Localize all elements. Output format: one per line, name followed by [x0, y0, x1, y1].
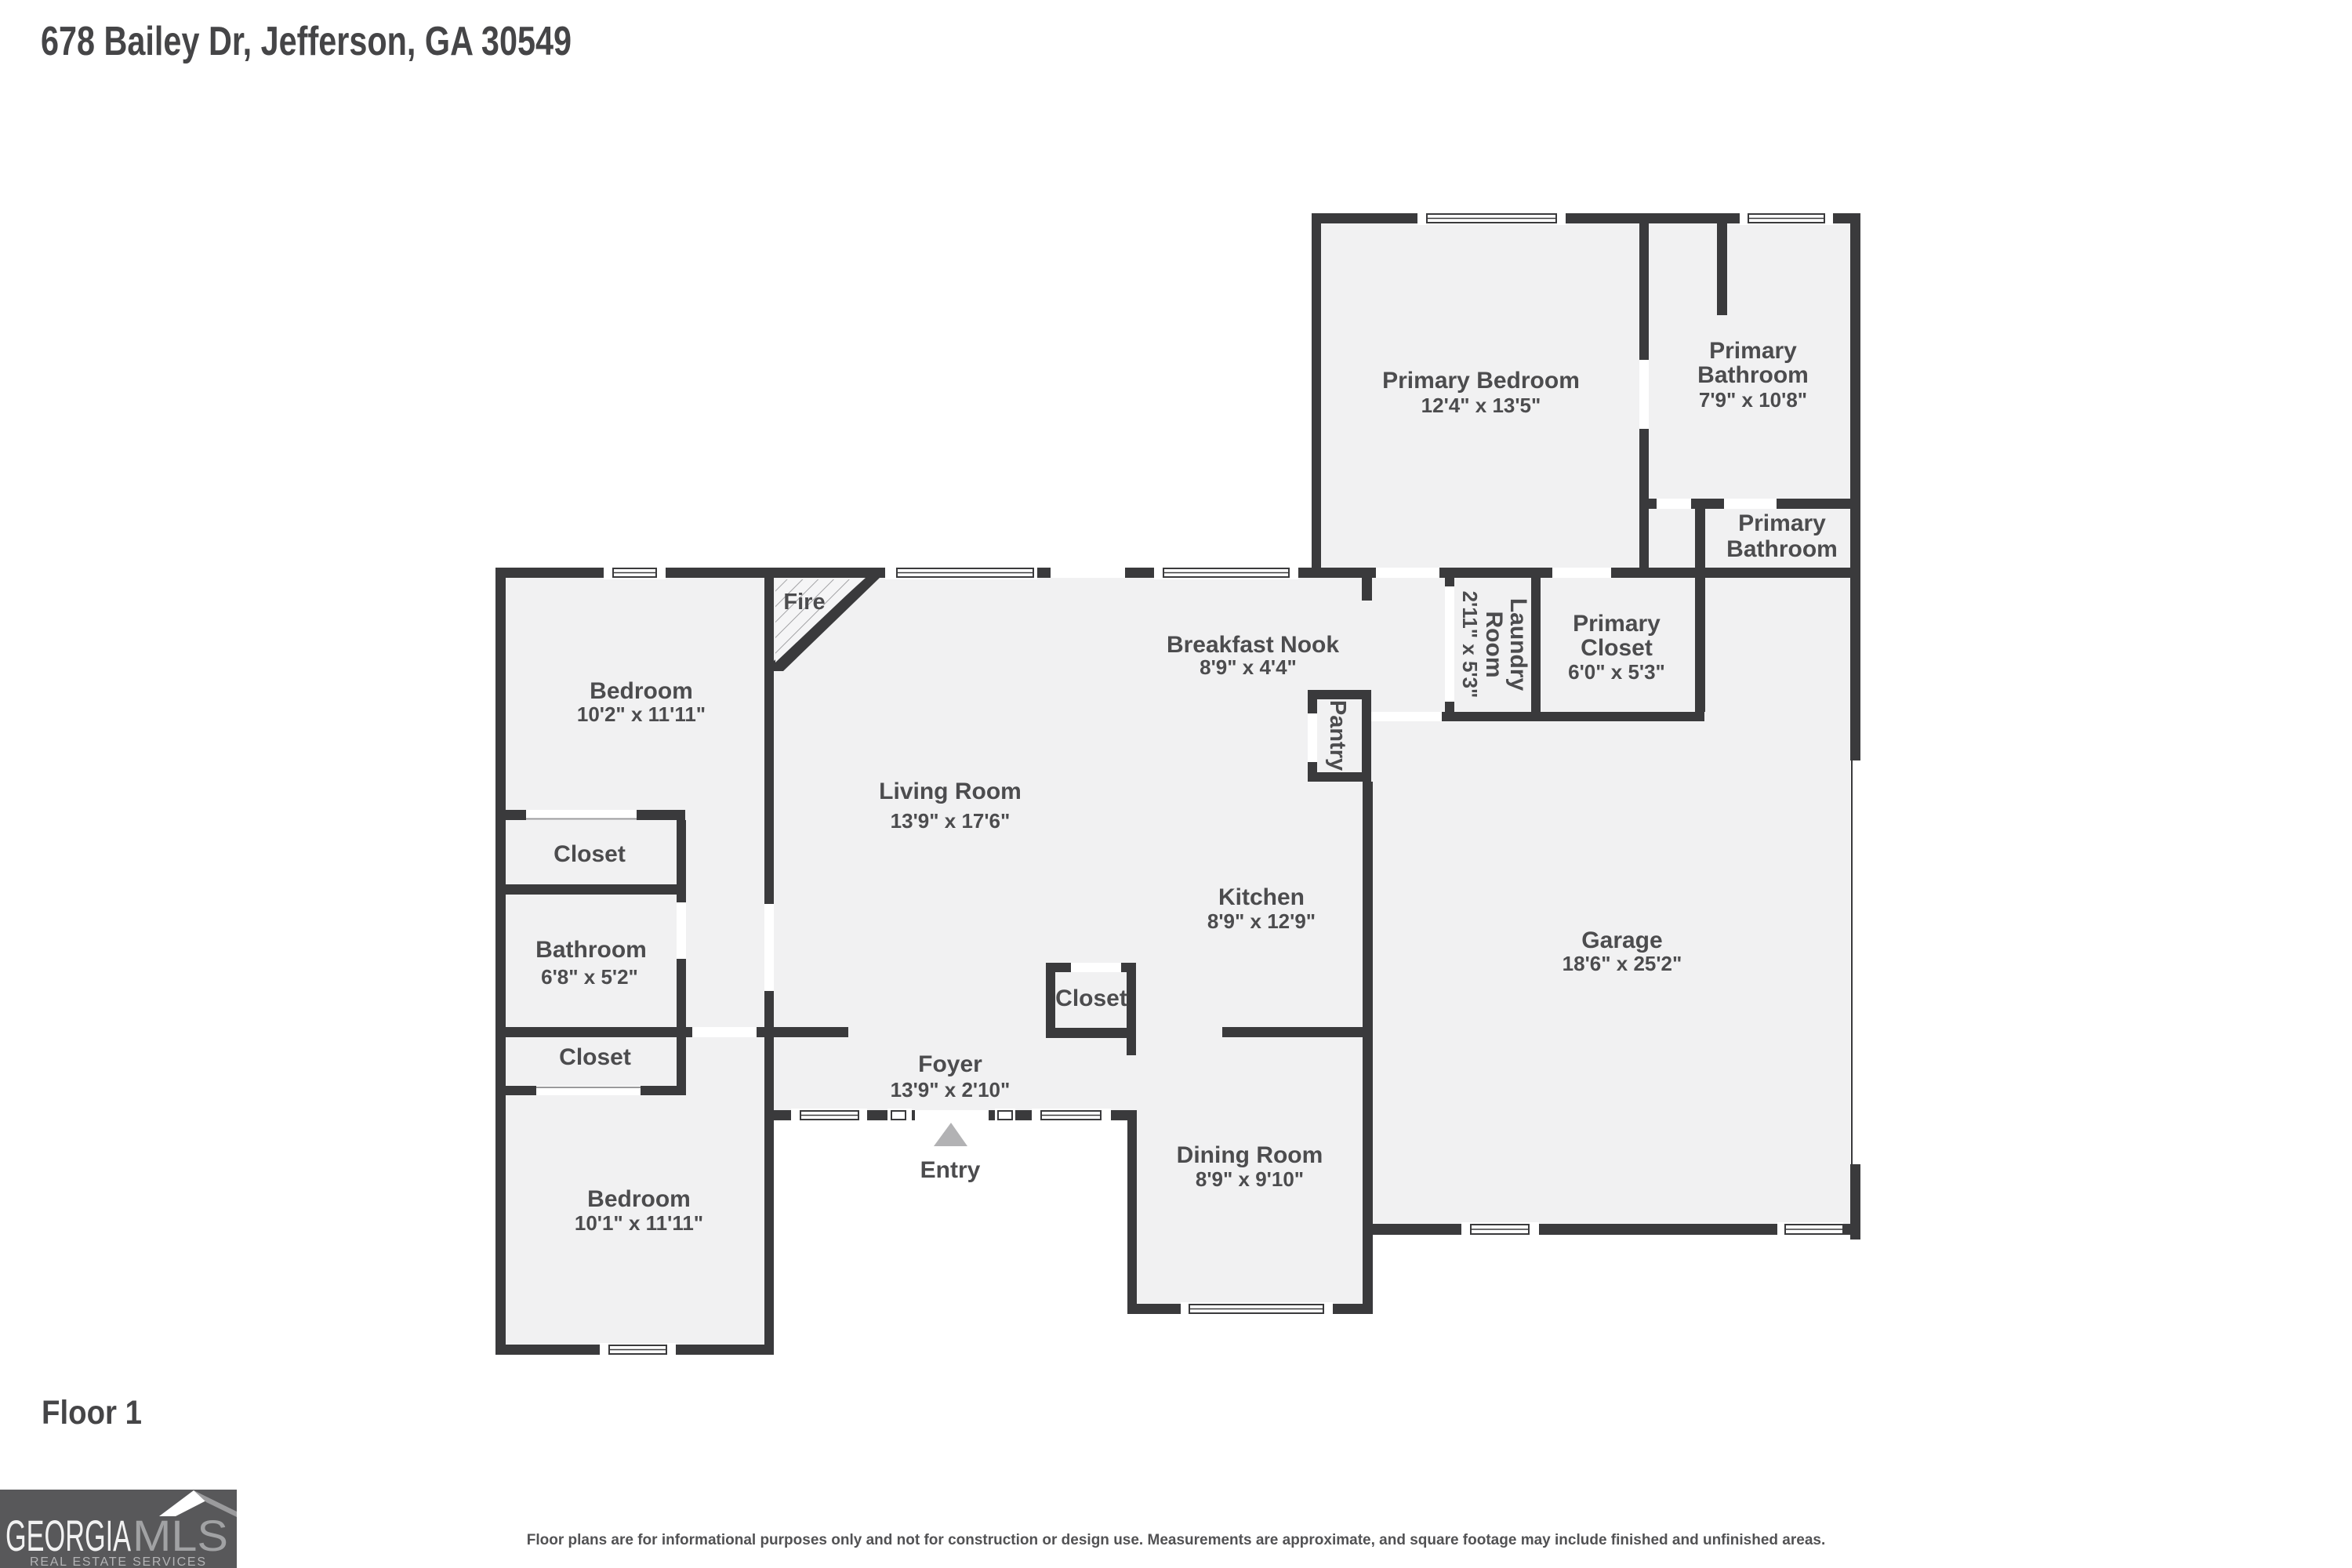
- svg-text:13'9" x 2'10": 13'9" x 2'10": [891, 1078, 1011, 1102]
- svg-text:Fire: Fire: [783, 590, 825, 615]
- svg-text:Foyer: Foyer: [918, 1051, 982, 1077]
- svg-text:18'6" x 25'2": 18'6" x 25'2": [1563, 952, 1682, 975]
- svg-text:6'8" x 5'2": 6'8" x 5'2": [541, 965, 638, 989]
- svg-text:678 Bailey Dr, Jefferson, GA 3: 678 Bailey Dr, Jefferson, GA 30549: [41, 19, 572, 64]
- svg-text:Primary Bedroom: Primary Bedroom: [1382, 368, 1580, 394]
- svg-text:7'9" x 10'8": 7'9" x 10'8": [1699, 388, 1807, 412]
- svg-text:8'9" x 9'10": 8'9" x 9'10": [1196, 1167, 1304, 1191]
- svg-text:Living Room: Living Room: [879, 779, 1022, 804]
- svg-text:10'1" x 11'11": 10'1" x 11'11": [575, 1211, 703, 1235]
- svg-text:Laundry: Laundry: [1505, 598, 1531, 691]
- svg-text:6'0" x 5'3": 6'0" x 5'3": [1568, 660, 1665, 684]
- svg-text:Primary: Primary: [1573, 611, 1661, 637]
- svg-text:Garage: Garage: [1581, 927, 1662, 953]
- svg-text:8'9" x 4'4": 8'9" x 4'4": [1200, 655, 1297, 679]
- svg-text:Bedroom: Bedroom: [587, 1186, 691, 1212]
- svg-text:2'11" x 5'3": 2'11" x 5'3": [1458, 591, 1482, 699]
- svg-text:Closet: Closet: [1055, 985, 1127, 1011]
- svg-text:REAL ESTATE SERVICES: REAL ESTATE SERVICES: [30, 1555, 205, 1568]
- svg-text:Closet: Closet: [559, 1044, 631, 1070]
- svg-text:MLS: MLS: [132, 1511, 228, 1560]
- svg-text:Bathroom: Bathroom: [535, 937, 647, 963]
- svg-text:10'2" x 11'11": 10'2" x 11'11": [577, 702, 706, 726]
- svg-text:Bedroom: Bedroom: [590, 678, 693, 704]
- svg-text:13'9" x 17'6": 13'9" x 17'6": [891, 809, 1011, 833]
- svg-text:Kitchen: Kitchen: [1218, 884, 1305, 910]
- svg-text:Bathroom: Bathroom: [1726, 536, 1838, 562]
- svg-text:Breakfast Nook: Breakfast Nook: [1167, 632, 1339, 658]
- svg-text:Floor 1: Floor 1: [42, 1394, 142, 1432]
- svg-text:12'4" x 13'5": 12'4" x 13'5": [1421, 394, 1541, 417]
- svg-text:Closet: Closet: [1581, 635, 1653, 661]
- svg-text:Entry: Entry: [920, 1157, 981, 1183]
- svg-text:Primary: Primary: [1738, 510, 1826, 536]
- svg-text:GEORGIA: GEORGIA: [5, 1511, 131, 1560]
- svg-text:Primary: Primary: [1709, 338, 1797, 364]
- svg-text:Room: Room: [1481, 612, 1507, 678]
- svg-text:Dining Room: Dining Room: [1177, 1142, 1323, 1168]
- svg-text:Pantry: Pantry: [1325, 700, 1350, 771]
- svg-text:Floor plans are for informatio: Floor plans are for informational purpos…: [527, 1532, 1825, 1548]
- svg-text:Closet: Closet: [554, 841, 626, 867]
- svg-text:8'9" x 12'9": 8'9" x 12'9": [1207, 909, 1316, 933]
- svg-text:Bathroom: Bathroom: [1697, 362, 1809, 388]
